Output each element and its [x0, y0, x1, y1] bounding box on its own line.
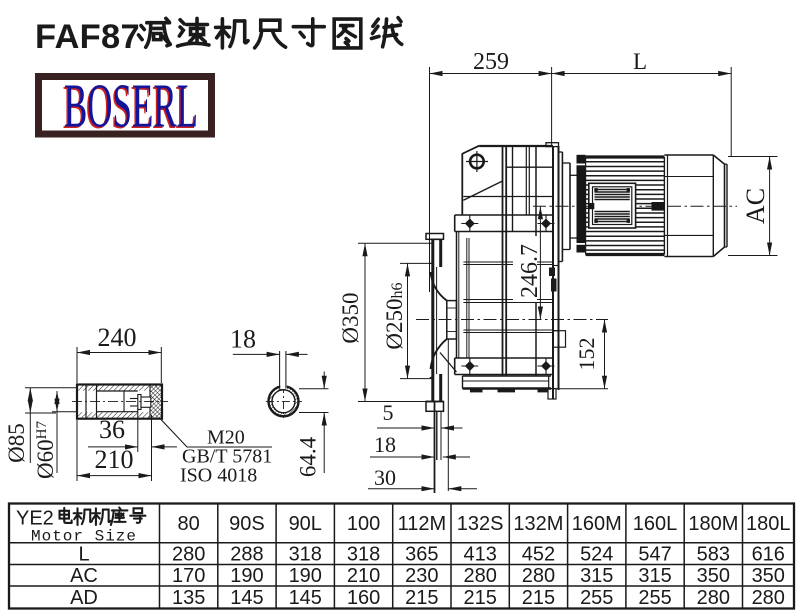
svg-text:318: 318	[289, 544, 322, 566]
svg-text:AC: AC	[741, 188, 770, 224]
svg-text:FAF87: FAF87	[35, 18, 140, 56]
svg-text:145: 145	[230, 587, 263, 609]
svg-text:280: 280	[752, 587, 785, 609]
svg-text:210: 210	[95, 445, 134, 474]
svg-text:AD: AD	[70, 587, 98, 609]
svg-text:160L: 160L	[633, 513, 678, 535]
svg-text:350: 350	[752, 565, 785, 587]
svg-text:280: 280	[697, 587, 730, 609]
svg-text:215: 215	[522, 587, 555, 609]
svg-text:547: 547	[638, 544, 671, 566]
svg-text:190: 190	[230, 565, 263, 587]
svg-text:215: 215	[405, 587, 438, 609]
svg-text:5: 5	[383, 400, 394, 425]
svg-text:L: L	[78, 544, 89, 566]
svg-text:132S: 132S	[457, 513, 504, 535]
svg-text:30: 30	[374, 465, 396, 490]
svg-text:180L: 180L	[746, 513, 791, 535]
svg-text:80: 80	[178, 513, 200, 535]
svg-text:230: 230	[405, 565, 438, 587]
svg-text:152: 152	[574, 338, 599, 371]
svg-text:280: 280	[172, 544, 205, 566]
svg-text:215: 215	[463, 587, 496, 609]
svg-text:YE2: YE2	[16, 508, 54, 530]
svg-text:18: 18	[230, 325, 256, 354]
svg-text:240: 240	[98, 323, 137, 352]
svg-text:255: 255	[638, 587, 671, 609]
svg-text:350: 350	[697, 565, 730, 587]
svg-text:112M: 112M	[398, 513, 447, 535]
svg-text:259: 259	[473, 49, 509, 75]
svg-text:36: 36	[99, 415, 125, 444]
svg-text:413: 413	[463, 544, 496, 566]
svg-text:18: 18	[374, 432, 396, 457]
svg-text:583: 583	[697, 544, 730, 566]
svg-text:315: 315	[638, 565, 671, 587]
svg-text:255: 255	[580, 587, 613, 609]
svg-text:AC: AC	[70, 565, 98, 587]
svg-text:100: 100	[347, 513, 380, 535]
svg-text:365: 365	[405, 544, 438, 566]
svg-text:452: 452	[522, 544, 555, 566]
svg-text:160: 160	[347, 587, 380, 609]
svg-text:616: 616	[752, 544, 785, 566]
svg-text:L: L	[633, 49, 647, 74]
svg-text:132M: 132M	[513, 513, 563, 535]
svg-text:ISO 4018: ISO 4018	[180, 465, 257, 487]
svg-text:90L: 90L	[289, 513, 322, 535]
svg-text:280: 280	[463, 565, 496, 587]
svg-text:180M: 180M	[688, 513, 738, 535]
svg-text:246.7: 246.7	[517, 244, 543, 298]
svg-text:170: 170	[172, 565, 205, 587]
svg-text:64.4: 64.4	[296, 436, 321, 477]
svg-text:BOSERL: BOSERL	[64, 73, 198, 141]
svg-text:288: 288	[230, 544, 263, 566]
svg-text:190: 190	[289, 565, 322, 587]
svg-text:318: 318	[347, 544, 380, 566]
svg-text:Ø350: Ø350	[338, 292, 363, 343]
svg-text:280: 280	[522, 565, 555, 587]
svg-text:145: 145	[289, 587, 322, 609]
svg-text:315: 315	[580, 565, 613, 587]
svg-text:Ø85: Ø85	[4, 423, 29, 463]
svg-text:90S: 90S	[229, 513, 265, 535]
svg-text:135: 135	[172, 587, 205, 609]
svg-text:210: 210	[347, 565, 380, 587]
svg-text:160M: 160M	[572, 513, 622, 535]
svg-text:524: 524	[580, 544, 613, 566]
